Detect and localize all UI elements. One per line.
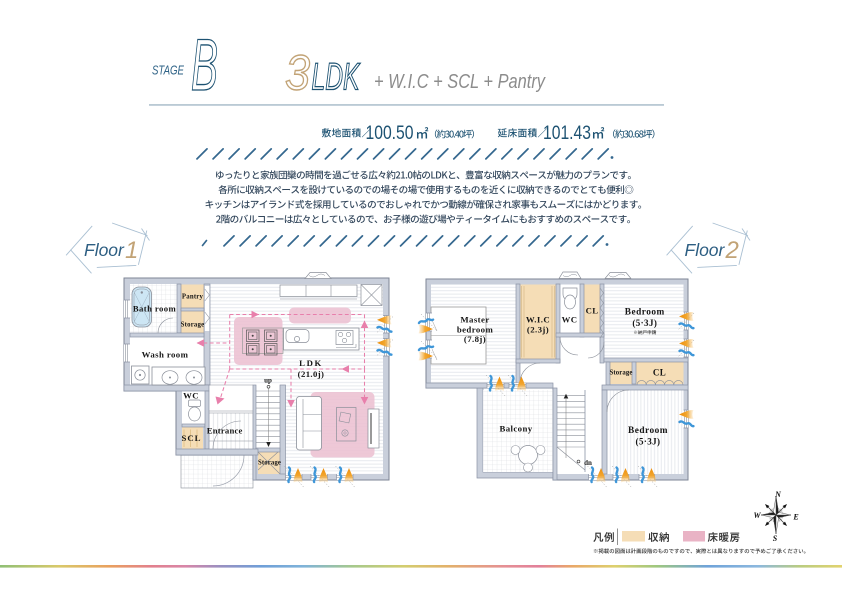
svg-text:dn: dn	[584, 459, 592, 467]
svg-text:Storage: Storage	[181, 322, 205, 329]
svg-text:Storage: Storage	[610, 370, 633, 377]
svg-text:Pantry: Pantry	[182, 294, 204, 301]
svg-text:CL: CL	[586, 306, 599, 316]
svg-text:Balcony: Balcony	[499, 424, 532, 434]
svg-text:SCL: SCL	[181, 433, 201, 443]
svg-text:Bedroom: Bedroom	[625, 308, 665, 318]
svg-text:W: W	[753, 511, 761, 520]
svg-text:Storage: Storage	[258, 460, 281, 467]
svg-text:3: 3	[285, 47, 310, 101]
svg-text:Bedroom: Bedroom	[628, 426, 668, 436]
svg-text:+ W.I.C + SCL + Pantry: + W.I.C + SCL + Pantry	[374, 71, 546, 93]
svg-text:E: E	[792, 513, 798, 522]
svg-text:(2.3j): (2.3j)	[527, 324, 549, 334]
svg-text:(7.8j): (7.8j)	[464, 334, 486, 344]
svg-text:(5·3J): (5·3J)	[632, 318, 657, 328]
svg-text:100.50: 100.50	[366, 122, 414, 144]
svg-text:B: B	[191, 25, 218, 106]
svg-text:1: 1	[125, 237, 138, 264]
svg-text:101.43: 101.43	[543, 122, 591, 144]
svg-text:(5·3J): (5·3J)	[636, 437, 661, 447]
svg-text:(21.0j): (21.0j)	[298, 369, 325, 379]
svg-text:Floor: Floor	[685, 240, 726, 260]
svg-text:LDK: LDK	[299, 358, 323, 368]
svg-text:S: S	[773, 534, 778, 543]
svg-text:WC: WC	[562, 315, 578, 325]
svg-text:CL: CL	[653, 368, 666, 378]
svg-text:STAGE: STAGE	[152, 63, 184, 78]
svg-text:Entrance: Entrance	[207, 426, 243, 436]
svg-text:Wash room: Wash room	[142, 350, 189, 360]
svg-text:Master: Master	[460, 314, 489, 324]
svg-text:bedroom: bedroom	[457, 324, 494, 334]
svg-text:up: up	[264, 377, 272, 385]
svg-text:Floor: Floor	[84, 240, 125, 260]
svg-text:WC: WC	[183, 391, 199, 401]
svg-text:2: 2	[725, 237, 739, 264]
svg-text:LDK: LDK	[312, 57, 361, 99]
svg-text:W.I.C: W.I.C	[526, 314, 550, 324]
svg-text:Bath room: Bath room	[133, 304, 177, 314]
